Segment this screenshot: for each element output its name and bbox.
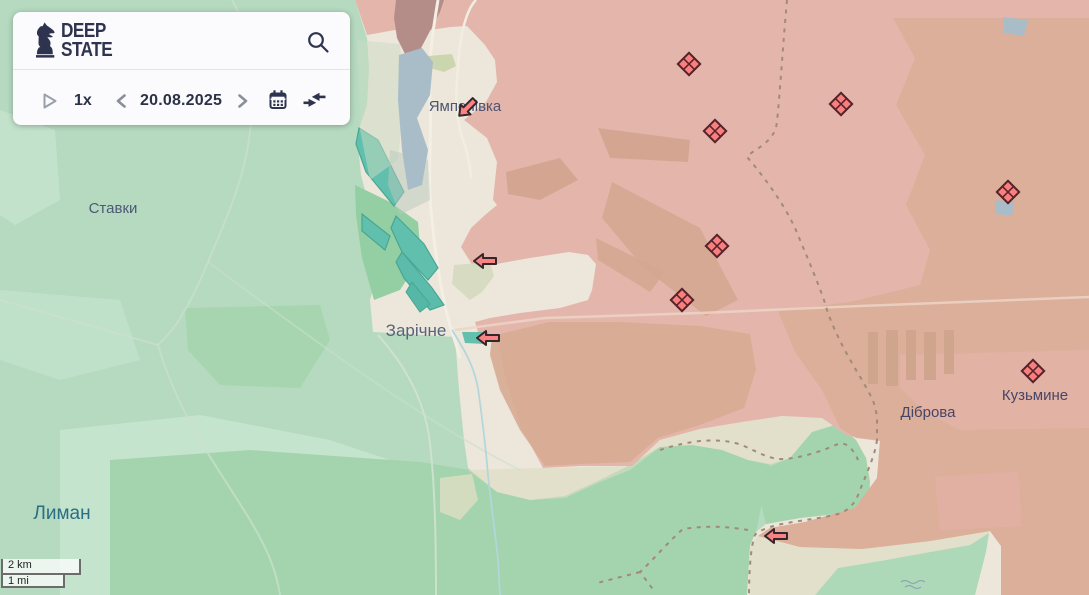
svg-text:Ставки: Ставки (89, 200, 138, 217)
svg-text:Лиман: Лиман (33, 503, 90, 524)
svg-text:Діброва: Діброва (901, 404, 957, 421)
svg-text:Кузьмине: Кузьмине (1002, 387, 1068, 404)
svg-text:Зарічне: Зарічне (386, 321, 447, 340)
